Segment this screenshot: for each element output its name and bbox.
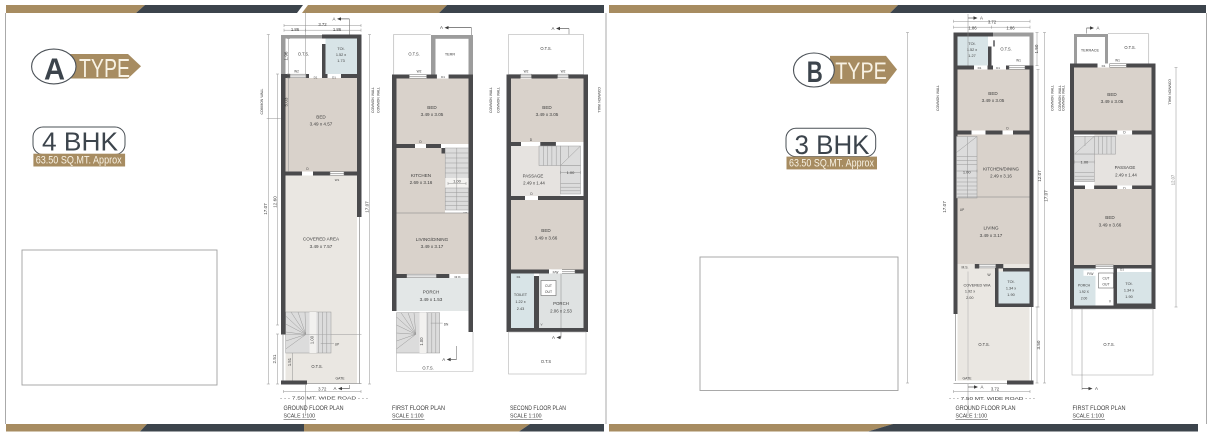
svg-text:3.49 x 7.57: 3.49 x 7.57 — [310, 244, 333, 249]
svg-text:3.72: 3.72 — [318, 22, 327, 27]
svg-text:W2: W2 — [524, 70, 529, 74]
svg-text:OUT: OUT — [1102, 283, 1109, 287]
svg-text:3.72: 3.72 — [991, 386, 1000, 391]
svg-text:A: A — [980, 16, 983, 21]
svg-text:1.27: 1.27 — [968, 54, 975, 58]
svg-text:- - - 7.50 MT. WIDE ROAD - -: - - - 7.50 MT. WIDE ROAD - - - — [949, 396, 1036, 401]
svg-text:1.51: 1.51 — [287, 357, 292, 366]
svg-text:A: A — [552, 335, 555, 340]
svg-text:OUT: OUT — [545, 290, 552, 294]
svg-text:D1: D1 — [517, 275, 521, 279]
svg-text:W2: W2 — [417, 70, 422, 74]
svg-text:3.49 x 3.05: 3.49 x 3.05 — [421, 112, 444, 117]
svg-text:V: V — [1109, 300, 1112, 304]
svg-text:TOI.: TOI. — [1125, 282, 1132, 286]
svg-text:FIRST FLOOR PLAN: FIRST FLOOR PLAN — [1073, 406, 1126, 412]
svg-text:D1: D1 — [978, 66, 982, 70]
svg-text:2.51: 2.51 — [272, 354, 277, 363]
svg-text:TYPE: TYPE — [79, 53, 130, 83]
svg-text:A: A — [552, 26, 555, 31]
svg-text:COMMON WALL: COMMON WALL — [1062, 85, 1066, 111]
svg-text:1.00: 1.00 — [963, 169, 972, 174]
svg-text:A: A — [440, 25, 443, 30]
svg-text:COMMON WALL: COMMON WALL — [497, 87, 501, 113]
svg-text:COMMON WALL: COMMON WALL — [1168, 79, 1172, 105]
svg-text:CUT: CUT — [545, 284, 552, 288]
svg-text:1.92 x: 1.92 x — [965, 290, 975, 294]
svg-text:1.00: 1.00 — [567, 170, 576, 175]
svg-text:W1: W1 — [1016, 59, 1021, 63]
svg-text:2.49 x 1.44: 2.49 x 1.44 — [1115, 173, 1137, 178]
svg-text:17.07: 17.07 — [364, 201, 369, 213]
svg-text:3.49 x 3.05: 3.49 x 3.05 — [982, 98, 1005, 103]
svg-text:COMMON WALL: COMMON WALL — [936, 85, 940, 111]
svg-text:B: B — [807, 56, 823, 89]
svg-text:A: A — [1095, 386, 1098, 391]
svg-text:D1: D1 — [441, 75, 445, 79]
svg-text:2.00: 2.00 — [966, 296, 973, 300]
svg-text:PASSAGE: PASSAGE — [1115, 165, 1136, 170]
svg-text:SCALE 1:100: SCALE 1:100 — [392, 414, 424, 420]
svg-text:17.07: 17.07 — [1044, 190, 1049, 202]
svg-text:TYPE: TYPE — [835, 58, 887, 85]
svg-text:1.86: 1.86 — [291, 27, 300, 32]
svg-text:BED: BED — [542, 105, 552, 110]
svg-text:1.86: 1.86 — [968, 26, 977, 31]
svg-text:2.00: 2.00 — [1081, 297, 1088, 301]
svg-text:1.90: 1.90 — [1007, 293, 1014, 297]
svg-text:1.00: 1.00 — [310, 335, 315, 344]
svg-text:COMMON WALL: COMMON WALL — [1051, 85, 1055, 111]
svg-text:PORCH: PORCH — [553, 301, 569, 306]
svg-text:TOI.: TOI. — [1007, 280, 1014, 284]
svg-text:12.07: 12.07 — [1171, 174, 1176, 185]
svg-text:1.86: 1.86 — [1006, 26, 1015, 31]
svg-text:CUT: CUT — [1103, 277, 1110, 281]
svg-text:1.22 x: 1.22 x — [515, 300, 525, 304]
svg-text:3.49 x 3.05: 3.49 x 3.05 — [1101, 99, 1124, 104]
svg-text:TOI.: TOI. — [968, 42, 975, 46]
svg-text:3.49 x 1.53: 3.49 x 1.53 — [420, 297, 443, 302]
svg-text:A: A — [981, 385, 984, 390]
svg-text:COMMON WALL: COMMON WALL — [489, 87, 493, 113]
svg-text:17.07: 17.07 — [263, 203, 268, 215]
svg-text:SECOND FLOOR PLAN: SECOND FLOOR PLAN — [510, 406, 566, 412]
svg-text:2.43: 2.43 — [517, 307, 524, 311]
svg-text:SCALE 1:100: SCALE 1:100 — [510, 414, 542, 420]
svg-text:LIVING/DINING: LIVING/DINING — [416, 237, 449, 242]
svg-text:3.49 x 3.66: 3.49 x 3.66 — [535, 236, 558, 241]
svg-text:TERRACE: TERRACE — [1081, 49, 1100, 53]
svg-text:O.T.S.: O.T.S. — [1124, 45, 1135, 50]
svg-text:GROUND FLOOR PLAN: GROUND FLOOR PLAN — [284, 406, 344, 412]
svg-text:PASSAGE: PASSAGE — [523, 174, 544, 179]
svg-text:3.49 x 3.17: 3.49 x 3.17 — [421, 244, 444, 249]
svg-text:F/W: F/W — [1087, 272, 1094, 276]
svg-text:3.49 x 4.57: 3.49 x 4.57 — [310, 122, 333, 127]
svg-text:SCALE 1:100: SCALE 1:100 — [284, 414, 316, 420]
svg-text:BED: BED — [1105, 215, 1115, 220]
svg-text:COMMON WALL: COMMON WALL — [371, 87, 375, 113]
svg-text:12.60: 12.60 — [272, 196, 277, 208]
svg-text:O.T.S.: O.T.S. — [298, 51, 309, 56]
svg-text:2.49 x 1.44: 2.49 x 1.44 — [523, 181, 545, 186]
svg-text:D1: D1 — [1102, 64, 1106, 68]
svg-text:O.T.S.: O.T.S. — [978, 342, 989, 347]
svg-text:12.07: 12.07 — [1037, 170, 1042, 182]
svg-text:GROUND FLOOR PLAN: GROUND FLOOR PLAN — [956, 406, 1016, 412]
svg-text:1.92 X: 1.92 X — [1079, 290, 1090, 294]
svg-text:3.49 x 3.17: 3.49 x 3.17 — [980, 233, 1003, 238]
svg-text:1.00: 1.00 — [453, 179, 462, 184]
svg-text:D1: D1 — [996, 66, 1000, 70]
svg-text:DN: DN — [444, 323, 449, 327]
svg-text:A: A — [44, 51, 65, 86]
svg-text:63.50 SQ.MT. Approx: 63.50 SQ.MT. Approx — [36, 155, 122, 167]
svg-text:COVERED W/A: COVERED W/A — [963, 283, 990, 287]
svg-text:1.73: 1.73 — [337, 59, 344, 63]
svg-text:1.00: 1.00 — [1081, 159, 1090, 164]
svg-text:63.50 SQ.MT. Approx: 63.50 SQ.MT. Approx — [789, 158, 874, 170]
svg-text:A: A — [442, 357, 445, 362]
svg-text:TOI.: TOI. — [337, 47, 344, 51]
svg-text:17.07: 17.07 — [942, 201, 947, 213]
svg-text:2.49 x 3.16: 2.49 x 3.16 — [990, 174, 1012, 179]
svg-text:A: A — [1097, 26, 1100, 31]
svg-text:LIVING: LIVING — [983, 226, 998, 231]
svg-text:2.06 x 2.53: 2.06 x 2.53 — [550, 309, 572, 314]
svg-text:O.T.S.: O.T.S. — [1000, 47, 1011, 52]
svg-text:PORCH: PORCH — [1078, 284, 1091, 288]
svg-text:4 BHK: 4 BHK — [42, 126, 119, 156]
svg-text:A: A — [333, 16, 336, 21]
svg-text:GATE: GATE — [336, 377, 346, 381]
svg-text:1.50: 1.50 — [1034, 44, 1039, 53]
svg-text:UP: UP — [335, 343, 339, 347]
svg-text:COMMON WALL: COMMON WALL — [377, 87, 381, 113]
svg-text:3.49 x 3.66: 3.49 x 3.66 — [1099, 223, 1122, 228]
svg-text:SCALE 1:100: SCALE 1:100 — [1073, 414, 1105, 420]
svg-text:W1: W1 — [335, 178, 340, 182]
svg-text:1.86: 1.86 — [333, 27, 342, 32]
svg-text:O.T.S.: O.T.S. — [408, 52, 419, 57]
svg-text:M.S.: M.S. — [962, 265, 969, 269]
svg-text:1.52 x: 1.52 x — [967, 48, 977, 52]
svg-text:O.T.S.: O.T.S. — [1103, 342, 1114, 347]
svg-text:A: A — [334, 386, 337, 391]
svg-text:TERR: TERR — [445, 53, 456, 57]
svg-text:1.90: 1.90 — [1125, 295, 1132, 299]
svg-text:BED: BED — [988, 91, 998, 96]
svg-text:3 BHK: 3 BHK — [795, 130, 870, 160]
svg-text:UP: UP — [960, 208, 964, 212]
svg-text:O.T.S.: O.T.S. — [311, 364, 322, 369]
svg-text:3.50: 3.50 — [1036, 340, 1041, 349]
svg-text:COMMON WALL: COMMON WALL — [260, 88, 264, 114]
svg-text:W1: W1 — [1115, 59, 1120, 63]
svg-text:BED: BED — [316, 115, 326, 120]
svg-text:W2: W2 — [294, 70, 299, 74]
svg-text:1.34 x: 1.34 x — [1006, 287, 1016, 291]
svg-text:1.52 x: 1.52 x — [336, 53, 346, 57]
svg-text:COVERED AREA: COVERED AREA — [303, 237, 340, 242]
svg-text:BED: BED — [541, 228, 551, 233]
svg-text:W2: W2 — [561, 70, 566, 74]
svg-text:- - - 7.50 MT. WIDE ROAD - -: - - - 7.50 MT. WIDE ROAD - - - — [280, 396, 369, 401]
svg-text:COMMON WALL: COMMON WALL — [597, 87, 601, 113]
svg-text:2.69 x 3.16: 2.69 x 3.16 — [410, 180, 433, 185]
svg-text:D1: D1 — [314, 75, 318, 79]
svg-text:1.00: 1.00 — [419, 337, 424, 346]
svg-text:3.72: 3.72 — [318, 386, 327, 391]
svg-text:O.T.S.: O.T.S. — [422, 366, 433, 371]
svg-text:5.03: 5.03 — [284, 97, 289, 106]
svg-text:3.72: 3.72 — [988, 19, 997, 24]
svg-text:D: D — [1123, 131, 1126, 135]
svg-text:3.49 x 3.05: 3.49 x 3.05 — [536, 112, 559, 117]
svg-text:GATE: GATE — [963, 377, 973, 381]
svg-text:D1: D1 — [332, 75, 336, 79]
svg-text:O.T.S.: O.T.S. — [540, 46, 551, 51]
svg-text:BED: BED — [1107, 92, 1117, 97]
svg-text:FIRST FLOOR PLAN: FIRST FLOOR PLAN — [392, 406, 445, 412]
svg-text:1.34 x: 1.34 x — [1124, 289, 1134, 293]
svg-text:PORCH: PORCH — [423, 290, 440, 295]
svg-text:KITCHEN: KITCHEN — [411, 173, 431, 178]
svg-text:O.T.S: O.T.S — [541, 359, 552, 364]
svg-text:SCALE 1:100: SCALE 1:100 — [956, 414, 988, 420]
svg-text:D1: D1 — [1120, 268, 1124, 272]
svg-text:KITCHEN/DINING: KITCHEN/DINING — [983, 167, 1019, 172]
svg-text:V: V — [540, 323, 542, 327]
svg-text:BED: BED — [427, 105, 437, 110]
svg-text:TOILET: TOILET — [514, 293, 528, 297]
svg-text:1.96: 1.96 — [284, 51, 289, 60]
